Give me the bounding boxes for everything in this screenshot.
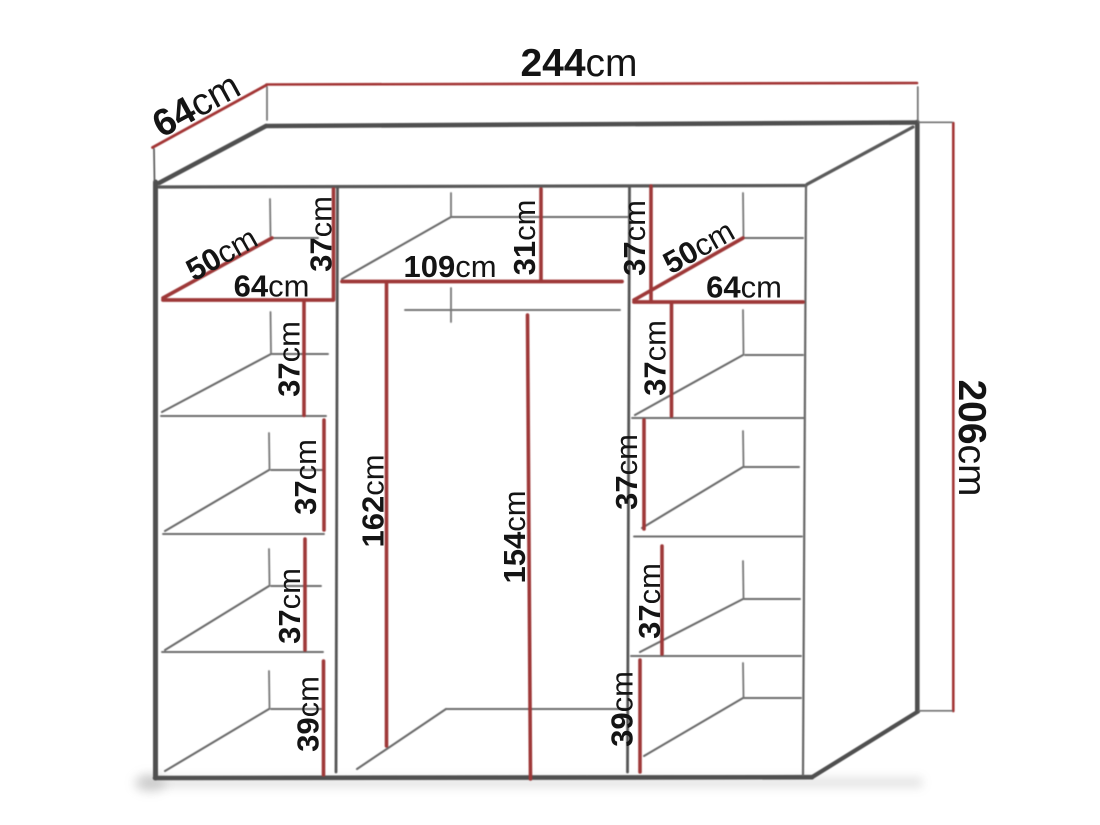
svg-text:37cm: 37cm xyxy=(608,434,643,510)
svg-text:154cm: 154cm xyxy=(497,490,532,583)
svg-text:39cm: 39cm xyxy=(604,671,639,747)
svg-text:37cm: 37cm xyxy=(303,196,338,272)
svg-text:37cm: 37cm xyxy=(272,568,307,644)
svg-text:37cm: 37cm xyxy=(637,320,672,396)
svg-text:37cm: 37cm xyxy=(288,439,323,515)
svg-text:244cm: 244cm xyxy=(520,42,637,85)
svg-text:109cm: 109cm xyxy=(403,249,496,284)
svg-text:39cm: 39cm xyxy=(290,676,325,752)
svg-text:37cm: 37cm xyxy=(271,321,306,397)
svg-text:64cm: 64cm xyxy=(706,269,782,304)
svg-text:162cm: 162cm xyxy=(355,454,390,547)
svg-text:64cm: 64cm xyxy=(234,268,310,303)
svg-text:37cm: 37cm xyxy=(617,200,652,276)
svg-text:64cm: 64cm xyxy=(146,65,248,146)
svg-text:206cm: 206cm xyxy=(951,379,994,496)
svg-text:37cm: 37cm xyxy=(632,563,667,639)
svg-text:31cm: 31cm xyxy=(507,200,542,276)
